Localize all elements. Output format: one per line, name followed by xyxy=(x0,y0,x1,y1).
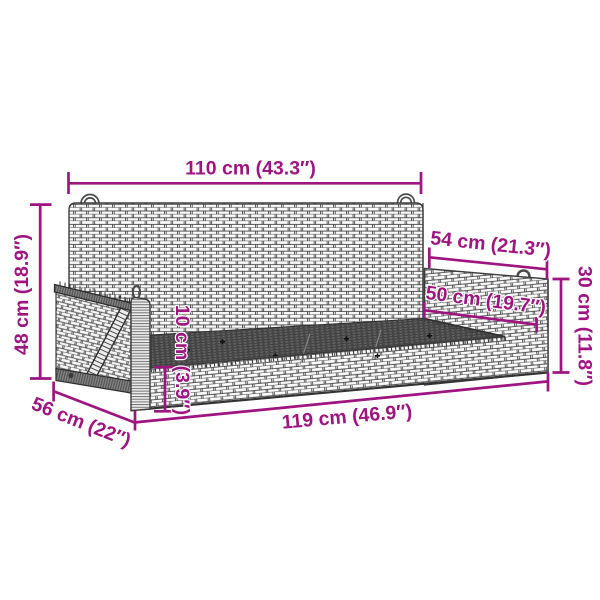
svg-text:110 cm (43.3″): 110 cm (43.3″) xyxy=(185,158,316,180)
svg-text:30 cm (11.8″): 30 cm (11.8″) xyxy=(574,266,596,386)
svg-text:48 cm (18.9″): 48 cm (18.9″) xyxy=(11,234,33,355)
svg-text:10 cm (3.9″): 10 cm (3.9″) xyxy=(171,305,193,415)
